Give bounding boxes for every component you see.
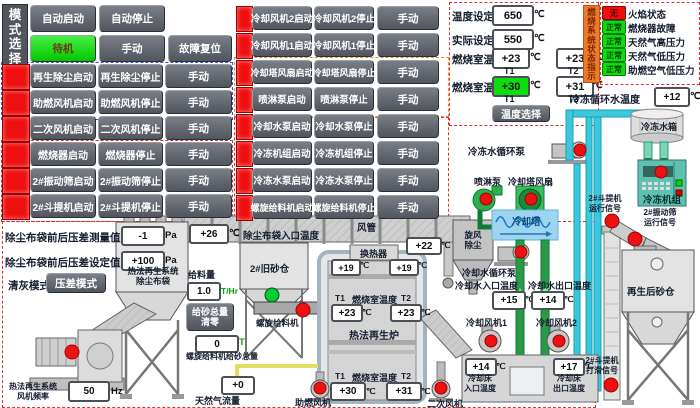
celsius-unit: ℃ [360,261,369,270]
feed-rate-label: 给料量 [188,268,215,281]
celsius-unit: ℃ [690,91,700,102]
manual-button[interactable]: 手动 [165,116,232,140]
cooling-tower-label: 冷却塔 [512,214,541,228]
cooling-pump-label: 冷却水循环泵 [462,266,516,279]
chilled-water-tank [631,109,683,166]
chilled-water-label: 冷冻循环水温度 [570,91,640,106]
duct-temp-value: +22 [406,237,442,255]
hx-t1-value: +19 [331,259,361,276]
manual-button[interactable]: 手动 [165,168,232,192]
stop-button[interactable]: 冷却风机2停止 [314,6,374,30]
celsius-unit: ℃ [441,240,451,251]
status-badge: 正常 [602,34,626,48]
regen-bin-label: 再生后砂仓 [627,284,675,298]
t2-tag: T2 [568,66,579,76]
start-button[interactable]: 2#振动筛启动 [30,168,96,192]
t1-tag: T1 [335,371,345,381]
gas-pipe [237,366,318,376]
status-label: 燃烧器故障 [628,21,676,35]
temp-actual-value: 550 [492,29,534,50]
screen-run-label: 2#振动筛 运行信号 [638,208,682,227]
status-indicator [2,90,30,116]
fault-reset-button[interactable]: 故障复位 [168,35,232,62]
screw-total-label: 螺旋给料机给砂总量 [186,351,258,362]
start-button[interactable]: 冷却水泵启动 [252,114,312,138]
celsius-unit: ℃ [496,361,506,372]
status-badge: 正常 [602,62,626,76]
manual-button[interactable]: 手动 [377,141,439,165]
status-indicator [236,141,253,167]
celsius-unit: ℃ [418,261,427,270]
celsius-unit: ℃ [530,80,541,91]
flame-state-badge: 无 [602,6,626,20]
t1-tag: T1 [335,293,345,303]
stop-button[interactable]: 2#斗提机停止 [98,194,163,218]
start-button[interactable]: 冷却塔风扇启动 [252,60,312,84]
status-label: 助燃空气低压力 [628,63,695,77]
feed-rate-value: 1.0 [187,282,221,301]
combustion-fan-label: 助燃风机 [295,396,331,408]
gas-flow-value: +0 [221,376,255,395]
baghouse-inlet-temp-label: 除尘布袋入口温度 [243,228,319,242]
bed-in-label: 冷却床 入口温度 [461,374,499,393]
pressure-mode-button[interactable]: 压差模式 [46,273,106,293]
status-indicator [2,168,30,194]
t2-tag: T2 [401,371,411,381]
status-label: 天然气高压力 [628,35,685,49]
fan-freq-value: 50 [68,381,110,402]
regen-sand-bin [622,250,694,405]
status-indicator [2,142,30,168]
cooling-fan1-label: 冷却风机1 [466,316,507,329]
tank-label: 冷冻水箱 [641,120,677,133]
start-button[interactable]: 2#斗提机启动 [30,194,96,218]
t1-tag: T1 [504,94,515,104]
elevator-run-label: 2#斗提机 运行信号 [583,194,627,213]
status-indicator [236,114,253,140]
chamber-upper-t1-value: +23 [331,304,363,322]
celsius-unit: ℃ [421,307,431,318]
chamber-lower-t1-value: +30 [330,382,366,401]
burner-status-title: 燃烧系统状态指示 [583,5,600,83]
stop-button[interactable]: 冷冻水泵停止 [314,168,374,192]
feed-total-reset-button[interactable]: 给砂总量 清零 [186,303,234,331]
start-button[interactable]: 助燃风机启动 [30,90,96,114]
stop-button[interactable]: 2#振动筛停止 [98,168,163,192]
cw-in-value: +15 [492,291,526,310]
stop-button[interactable]: 二次风机停止 [98,116,163,140]
status-indicator [236,87,253,113]
dp-setpoint-label: 除尘布袋前后压差设定值 [5,255,121,270]
manual-button[interactable]: 手动 [377,87,439,111]
start-button[interactable]: 冷却风机1启动 [252,33,312,57]
celsius-unit: ℃ [421,386,431,397]
manual-button[interactable]: 手动 [377,6,439,30]
gas-flow-label: 天然气流量 [195,394,240,407]
baghouse-inlet-temp-value: +26 [189,224,229,244]
start-button[interactable]: 再生除尘启动 [30,64,96,88]
auto-start-button[interactable]: 自动启动 [30,5,96,32]
start-button[interactable]: 螺旋给料机启动 [252,195,312,219]
status-label: 天然气低压力 [628,49,685,63]
start-button[interactable]: 冷冻机组启动 [252,141,312,165]
hz-unit: Hz [111,386,123,397]
stop-button[interactable]: 冷冻机组停止 [314,141,374,165]
manual-button[interactable]: 手动 [165,142,232,166]
manual-button[interactable]: 手动 [377,195,439,219]
manual-button[interactable]: 手动 [377,114,439,138]
celsius-unit: ℃ [362,307,372,318]
chamber-lower-t2-value: +31 [386,382,422,401]
start-button[interactable]: 燃烧器启动 [30,142,96,166]
manual-button[interactable]: 手动 [377,168,439,192]
status-indicator [2,194,30,220]
tower-fan-label: 冷却塔风扇 [508,175,553,188]
furnace-label: 热法再生炉 [349,327,399,342]
old-bin-label: 2#旧砂仓 [250,261,289,275]
spray-pump-label: 喷淋泵 [474,175,501,188]
stop-button[interactable]: 燃烧器停止 [98,142,163,166]
manual-button[interactable]: 手动 [165,64,232,88]
stop-button[interactable]: 螺旋给料机停止 [314,195,374,219]
mode-panel-title: 模式选择 [2,4,28,68]
cw-out-value: +14 [531,291,565,310]
pa-unit: Pa [165,230,177,241]
heat-exchanger-label: 换热器 [360,247,387,260]
manual-button[interactable]: 手动 [377,33,439,57]
manual-button[interactable]: 手动 [165,90,232,114]
status-badge: 正常 [602,20,626,34]
manual-mode-button[interactable]: 手动 [99,35,165,62]
celsius-unit: ℃ [534,33,545,44]
stop-button[interactable]: 助燃风机停止 [98,90,163,114]
clean-mode-label: 清灰模式 [8,278,50,293]
start-button[interactable]: 冷却风机2启动 [252,6,312,30]
status-indicator [2,116,30,142]
stop-button[interactable]: 再生除尘停止 [98,64,163,88]
manual-button[interactable]: 手动 [165,194,232,218]
celsius-unit: ℃ [564,294,574,305]
t1-tag: T1 [504,66,515,76]
screw-feeder-label: 螺旋给料机 [256,317,299,329]
status-indicator [2,64,30,90]
celsius-unit: ℃ [534,9,545,20]
bed-out-label: 冷却床 出口温度 [550,374,588,393]
hx-t2-value: +19 [389,259,419,276]
stop-button[interactable]: 喷淋泵停止 [314,87,374,111]
baghouse-label: 热法再生系统 除尘布袋 [118,266,188,286]
manual-button[interactable]: 手动 [377,60,439,84]
stop-button[interactable]: 冷却水泵停止 [314,114,374,138]
chamber-upper-t2-value: +23 [390,304,422,322]
cooling-fan2-label: 冷却风机2 [536,316,577,329]
start-button[interactable]: 冷冻水泵启动 [252,168,312,192]
auto-stop-button[interactable]: 自动停止 [99,5,165,32]
start-button[interactable]: 二次风机启动 [30,116,96,140]
thr-unit: T/Hr [221,286,238,296]
cyclone-label: 旋风 除尘 [456,230,490,250]
celsius-unit: ℃ [229,228,240,239]
chiller-label: 冷冻机组 [643,192,681,206]
chilled-water-value: +12 [654,87,690,107]
stop-button[interactable]: 冷却风机1停止 [314,33,374,57]
stop-button[interactable]: 冷却塔风扇停止 [314,60,374,84]
t2-tag: T2 [401,293,411,303]
celsius-unit: ℃ [530,52,541,63]
temp-select-button[interactable]: 温度选择 [492,105,550,122]
chilled-pump-label: 冷冻水循环泵 [468,144,525,158]
dp-measured-label: 除尘布袋前后压差测量值 [5,230,121,245]
pa-unit: Pa [165,255,177,266]
elevator-slip-label: 2#斗提机 打滑信号 [580,356,624,375]
start-button[interactable]: 喷淋泵启动 [252,87,312,111]
fan-freq-label: 热法再生系统 风机频率 [2,382,64,401]
dp-measured-value: -1 [121,226,165,246]
temp-set-value: 650 [492,5,534,26]
status-badge: 正常 [602,48,626,62]
status-indicator [236,168,253,194]
t-unit: T [239,337,245,348]
secondary-fan-label: 二次风机 [427,397,463,408]
status-label: 火焰状态 [628,7,666,21]
hmi-screen: 模式选择 自动启动 自动停止 待机 手动 故障复位 再生除尘启动 再生除尘停止 … [0,0,700,408]
standby-button[interactable]: 待机 [30,35,96,62]
duct-label: 风管 [357,220,376,234]
celsius-unit: ℃ [366,386,376,397]
